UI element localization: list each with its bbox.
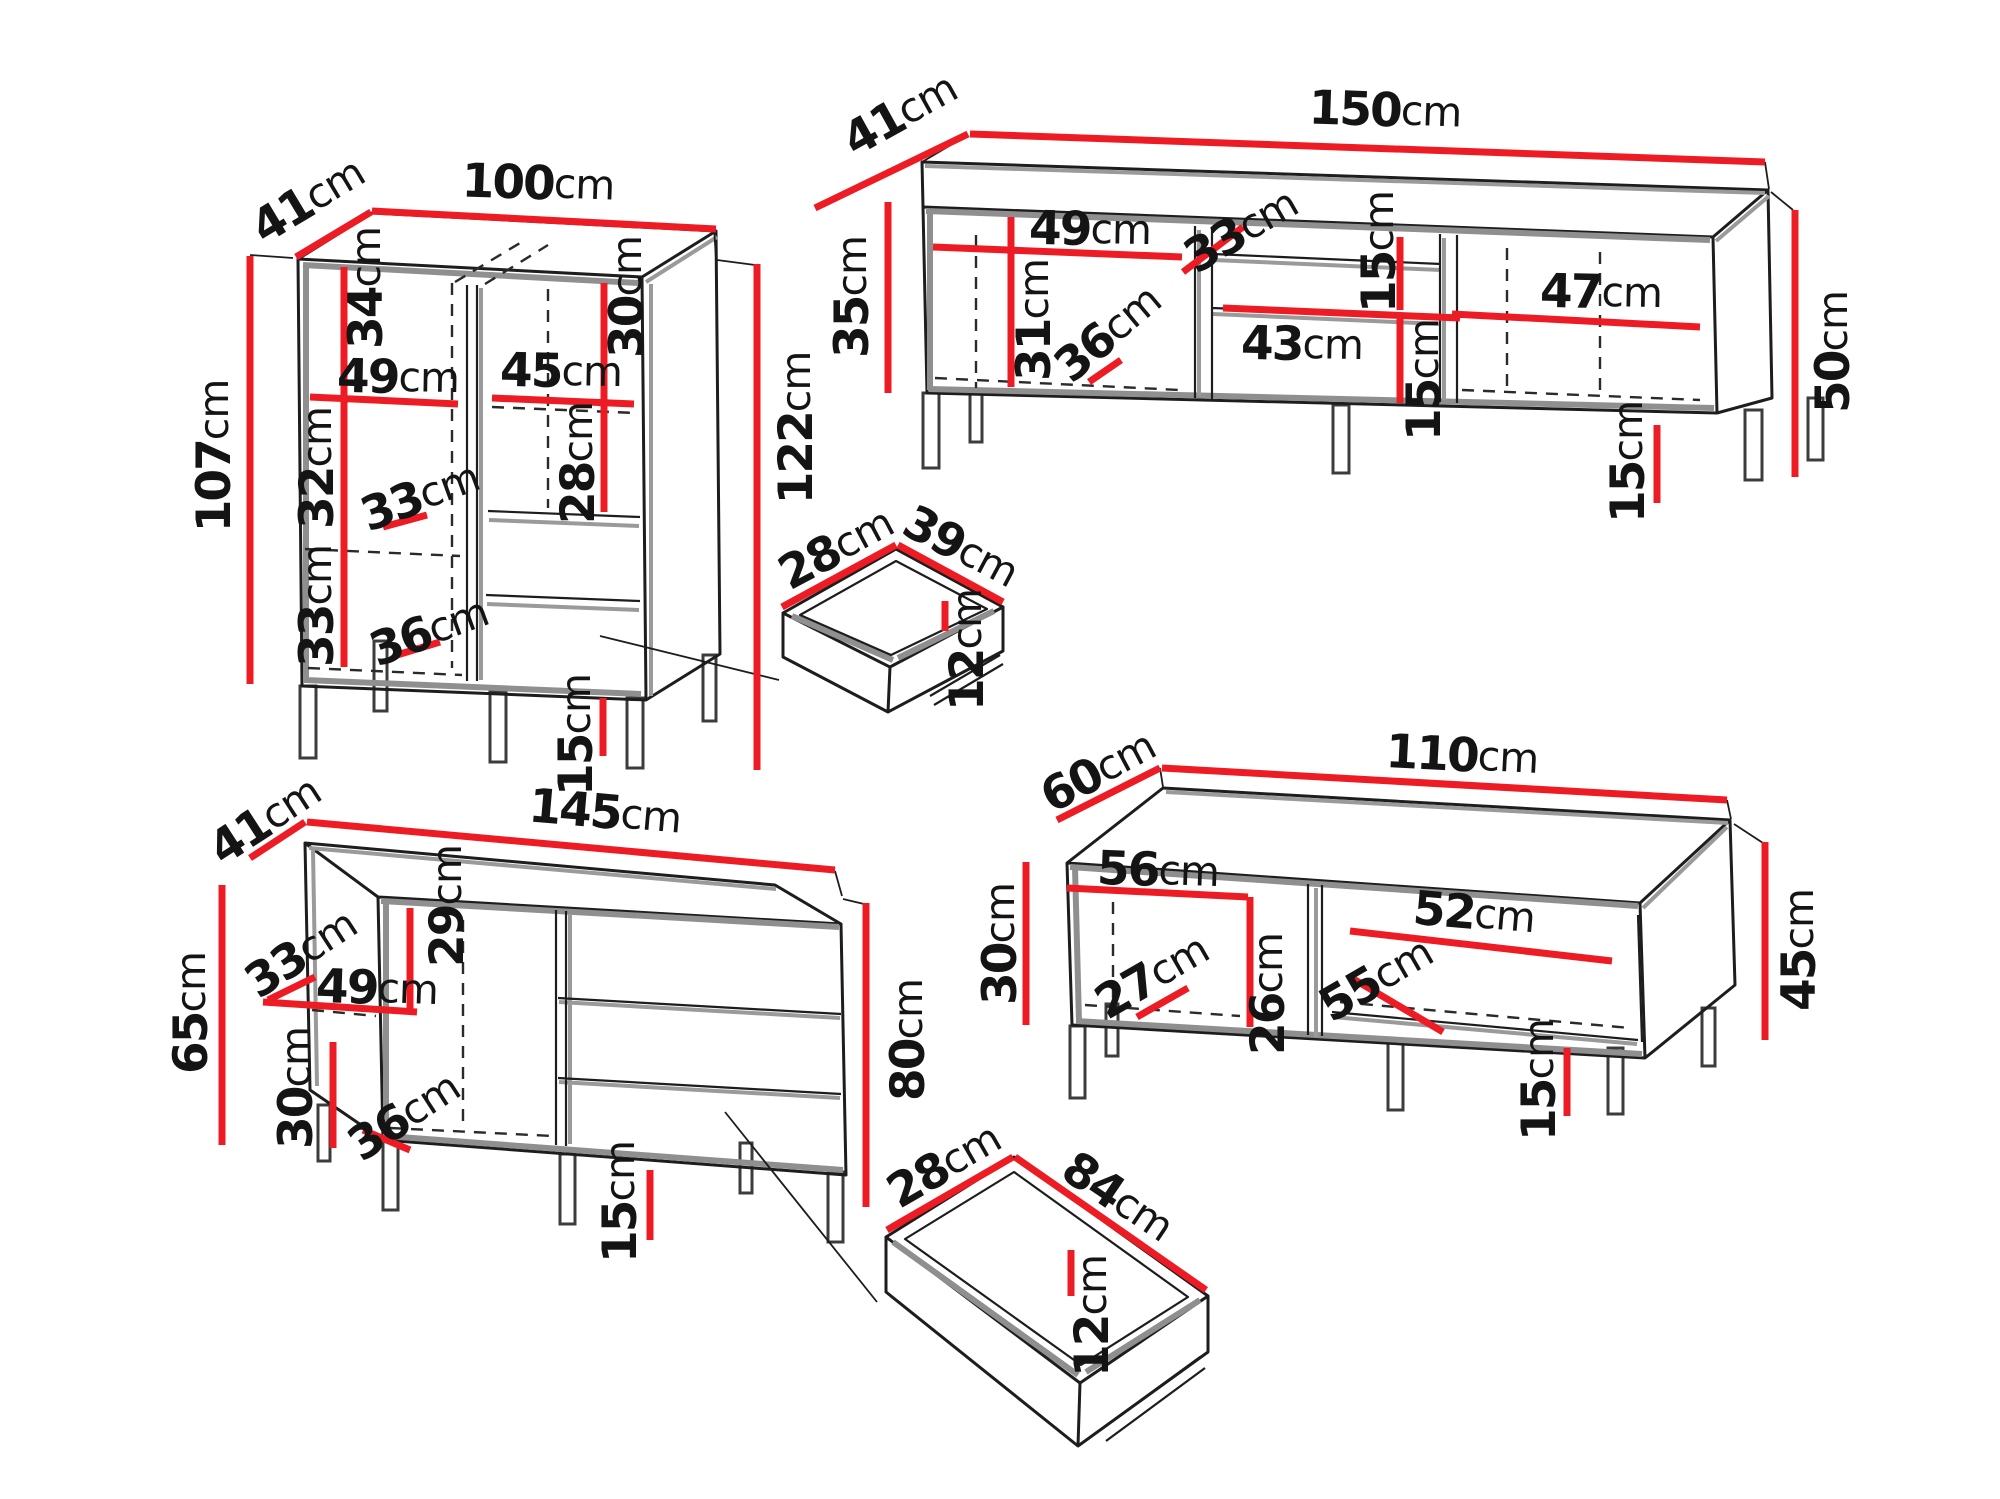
cabinet-leg-front-left [300,686,316,758]
bench-total-height-label: 45cm [1772,889,1827,1011]
sideboard-leg-front-right [828,1172,843,1242]
small-drawer: 28cm 39cm 12cm [769,494,1027,712]
large-drawer: 28cm 84cm 12cm [877,1111,1208,1446]
cabinet-middle-section-right-label: 28cm [551,402,606,524]
bench-legs-label: 15cm [1512,1019,1567,1141]
cabinet-legs-label: 15cm [549,674,604,796]
sideboard-extension-lines [835,871,864,904]
small-drawer-height-label: 12cm [940,589,995,711]
cabinet-height-right-label: 122cm [769,352,824,505]
bench-leg-front-middle [1388,1040,1403,1110]
sideboard-interior-lines [556,910,841,1146]
large-drawer-height-label: 12cm [1065,1255,1120,1377]
bench-leg-back-right [1702,1008,1715,1066]
cabinet-top-section-right-label: 30cm [600,236,655,358]
tv-stand-leg-front-middle [1333,405,1349,473]
cabinet-shelf-right-label: 45cm [500,342,623,399]
tv-stand-door-width-middle-label: 33cm [1174,176,1307,285]
furniture-dimension-diagram: 41cm 100cm 107cm 122cm 34cm 30cm 49cm 45… [0,0,2000,1499]
small-drawer-width-label: 28cm [769,495,902,601]
cabinet-top-section-left-label: 34cm [339,227,394,349]
tv-stand-leg-back-left [970,390,982,442]
bench-depth-label: 60cm [1031,718,1164,824]
large-drawer-length-label: 84cm [1052,1140,1184,1254]
tv-stand-niche-top-label: 15cm [1352,191,1407,313]
cabinet-leg-front-right [627,698,643,768]
cabinet-bottom-section-left-label: 33cm [290,545,345,667]
large-drawer-shading [893,1242,1200,1375]
sideboard-leg-front-middle [560,1154,575,1224]
sideboard-body-height-label: 65cm [164,952,219,1074]
cabinet-shelf-left-label: 49cm [337,348,460,405]
bench-shelf-right-label: 52cm [1411,880,1537,945]
tv-stand-depth-label: 41cm [833,60,966,167]
sideboard: 41cm 145cm 65cm 80cm 29cm 33cm 49cm 30cm… [164,764,936,1302]
diagram-canvas: 41cm 100cm 107cm 122cm 34cm 30cm 49cm 45… [0,0,2000,1499]
sideboard-door-width-bottom-label: 36cm [338,1060,470,1173]
bench-shelf-left-label: 56cm [1096,840,1220,899]
tv-stand-shelf-middle-label: 43cm [1241,315,1364,372]
tv-stand-width-label: 150cm [1308,80,1462,140]
bench: 60cm 110cm 30cm 56cm 27cm 26cm 55cm 52cm… [973,718,1827,1141]
large-drawer-width-label: 28cm [877,1111,1010,1220]
sideboard-top-section-label: 29cm [420,845,475,967]
sideboard-bottom-section-label: 30cm [269,1027,324,1149]
sideboard-legs-label: 15cm [593,1141,648,1263]
bench-leg-front-left [1070,1026,1085,1098]
tv-stand-body-height-label: 35cm [825,236,880,358]
tv-stand-shelf-right-label: 47cm [1540,263,1663,320]
cabinet-middle-section-left-label: 32cm [290,407,345,529]
cabinet-door-width-bottom-label: 36cm [362,584,495,677]
tv-stand: 41cm 150cm 35cm 49cm 31cm 36cm 33cm 15cm… [815,60,1861,523]
bench-width-label: 110cm [1384,724,1539,787]
bench-body-height-label: 30cm [973,883,1028,1005]
sideboard-shelf-label: 49cm [315,958,439,1017]
tv-stand-total-height-label: 50cm [1806,291,1861,413]
sideboard-drawer-leader-line [725,1112,877,1302]
cabinet-height-left-label: 107cm [187,380,242,533]
sideboard-width-label: 145cm [527,778,684,846]
tv-stand-leg-front-left [923,393,939,468]
cabinet: 41cm 100cm 107cm 122cm 34cm 30cm 49cm 45… [187,145,824,796]
sideboard-total-height-label: 80cm [881,979,936,1101]
cabinet-width-label: 100cm [461,153,615,213]
tv-stand-shelf-left-label: 49cm [1029,200,1152,257]
cabinet-leg-front-middle [490,692,506,762]
tv-stand-niche-bottom-label: 15cm [1397,319,1452,441]
tv-stand-leg-front-right [1745,410,1762,480]
tv-stand-door-width-left-label: 36cm [1044,273,1173,393]
bench-section-middle-label: 26cm [1241,933,1296,1055]
tv-stand-legs-label: 15cm [1601,401,1656,523]
